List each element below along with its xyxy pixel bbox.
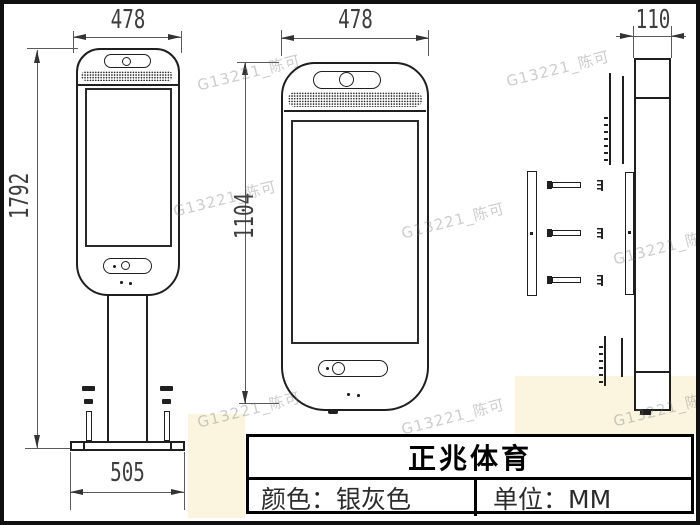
vent-ticks xyxy=(604,117,608,163)
mount-plate-hole xyxy=(628,231,631,234)
front-profile-line xyxy=(621,338,623,377)
title-block-color: 颜色：银灰色 xyxy=(249,480,477,516)
side-seam-bottom xyxy=(636,371,669,373)
title-block: 正兆体育 颜色：银灰色 单位：MM xyxy=(246,434,694,514)
side-depth-label: 110 xyxy=(635,7,672,33)
mount-bolt-shaft xyxy=(552,230,581,236)
front-profile-line xyxy=(609,73,611,165)
mount-bolt-shaft xyxy=(552,182,581,188)
title-block-row: 颜色：银灰色 单位：MM xyxy=(249,480,691,516)
front-profile-line xyxy=(622,76,624,164)
front-profile-line xyxy=(604,336,606,386)
side-seam-top xyxy=(636,97,669,99)
vent-ticks xyxy=(599,346,603,384)
mount-bolt-shaft xyxy=(552,277,581,283)
dim-arrow-left xyxy=(671,33,684,39)
dim-arrow-right xyxy=(620,33,633,39)
mount-screw xyxy=(597,275,603,286)
mount-screw xyxy=(597,180,603,191)
title-block-company: 正兆体育 xyxy=(249,437,691,480)
technical-drawing-sheet: G13221_陈可 G13221_陈可 G13221_陈可 G13221_陈可 … xyxy=(0,0,700,525)
title-block-unit: 单位：MM xyxy=(477,480,691,516)
mount-screw xyxy=(597,228,603,239)
mount-plate-hole xyxy=(530,232,533,235)
